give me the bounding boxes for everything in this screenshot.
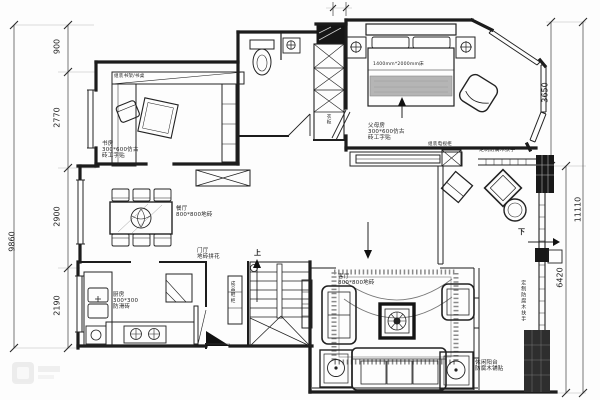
living-floor: 800*800地砖	[338, 280, 375, 286]
room-label-living: 客厅 800*800地砖	[338, 274, 375, 286]
dim-2900: 2900	[53, 200, 62, 234]
study-pattern: 砖工字贴	[102, 153, 139, 159]
shower-icon	[283, 38, 300, 53]
room-label-dining: 餐厅 800*800地砖	[176, 206, 213, 218]
balcony-table	[485, 170, 522, 207]
label-shoe-cabinet: 成品鞋柜	[230, 281, 235, 323]
pillow	[413, 37, 450, 48]
dining-set	[110, 189, 172, 246]
pillow	[372, 37, 409, 48]
dim-900: 900	[53, 30, 62, 64]
sink-icon	[88, 304, 108, 318]
dim-9860-total: 9860	[8, 225, 17, 259]
nightstand	[456, 37, 475, 58]
stairs-up-label: 上	[254, 250, 261, 256]
entrance-door	[206, 331, 230, 346]
label-handrail-side: 定制防腐木扶手	[520, 280, 526, 338]
floor-plan-page: 900 2770 2900 2190 9860 3650 6420 11110 …	[0, 0, 600, 400]
nightstand	[347, 37, 366, 58]
floor-plan-drawing	[0, 0, 600, 400]
arrow-down-icon	[364, 250, 372, 259]
bathroom-door-swing	[288, 114, 310, 136]
railing-post	[536, 155, 554, 193]
kitchen-pattern: 防滑砖	[113, 304, 138, 310]
dim-2770: 2770	[53, 101, 62, 135]
balcony-items	[442, 170, 526, 221]
balcony-railing	[478, 155, 562, 392]
dim-2190: 2190	[53, 289, 62, 323]
bathroom-fixtures	[250, 32, 310, 136]
label-handrail-top: 定制防腐木扶手	[479, 147, 515, 153]
toilet-icon	[250, 40, 274, 49]
kitchen-fixtures	[84, 272, 206, 346]
dim-11110-total: 11110	[574, 191, 583, 229]
label-wardrobe: 衣柜	[326, 114, 331, 138]
railing-planter	[524, 330, 550, 392]
round-table	[504, 199, 526, 221]
dim-6420: 6420	[556, 261, 565, 295]
kitchen-door-leaf	[194, 306, 198, 344]
label-bed-size: 1400mm*2000mm床	[373, 62, 424, 67]
stairs	[250, 259, 310, 346]
dim-3650: 3650	[541, 76, 550, 110]
tv-cabinet	[350, 150, 462, 166]
dining-floor: 800*800地砖	[176, 212, 213, 218]
room-label-study: 书房 300*600仿古 砖工字贴	[102, 141, 139, 160]
room-label-balcony: 休闲阳台 防腐木铺贴	[475, 360, 504, 372]
bed-headboard	[366, 24, 456, 35]
arrow-up-icon	[398, 97, 406, 106]
balcony-floor: 防腐木铺贴	[475, 366, 504, 372]
bed-blanket	[370, 76, 452, 96]
balcony-chair	[442, 172, 473, 203]
parents-pattern: 砖工字贴	[368, 135, 405, 141]
arrow-right-icon	[553, 238, 560, 246]
bay-armchair	[457, 72, 500, 114]
label-bookshelf: 组装书架/书桌	[114, 74, 145, 79]
console-table	[196, 170, 250, 186]
label-tv-cabinet: 组装电视柜	[428, 142, 452, 147]
watermark-logo	[12, 362, 62, 392]
room-label-kitchen: 厨房 300*300 防滑砖	[113, 292, 138, 311]
dining-table	[110, 202, 172, 234]
stairs-down-label: 下	[518, 229, 525, 235]
room-label-hall: 门厅 地砖拼花	[197, 248, 220, 260]
stairs-up-arrow-icon	[253, 259, 261, 268]
walls	[78, 20, 556, 392]
room-label-parents: 父母房 300*600仿古 砖工字贴	[368, 123, 405, 142]
corridor-arrow	[364, 222, 372, 259]
railing-post	[535, 248, 549, 262]
living-furniture	[302, 272, 474, 390]
bedroom-furniture	[332, 24, 500, 140]
hall-floor: 地砖拼花	[197, 254, 220, 260]
